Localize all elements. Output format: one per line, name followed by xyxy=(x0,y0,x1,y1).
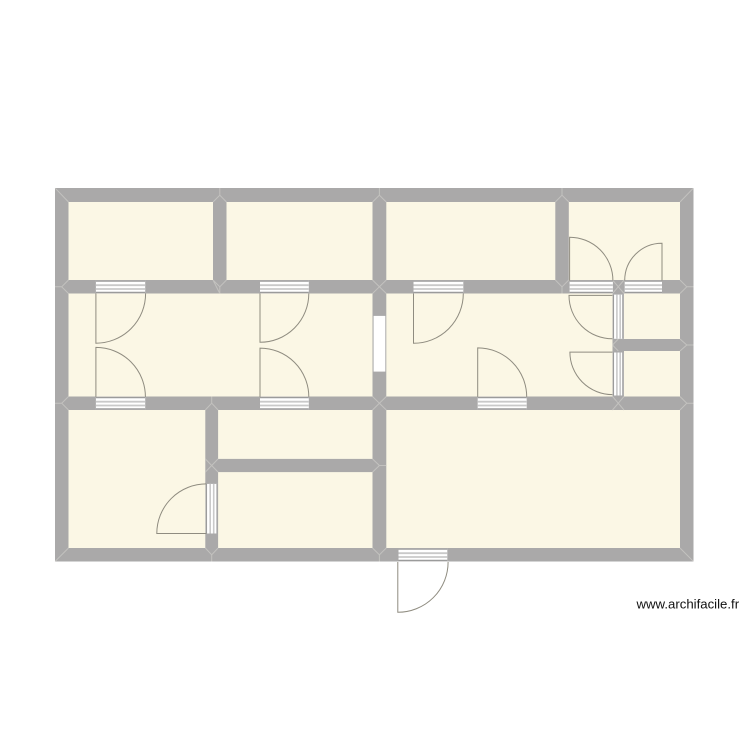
svg-text:www.archifacile.fr: www.archifacile.fr xyxy=(636,596,740,611)
